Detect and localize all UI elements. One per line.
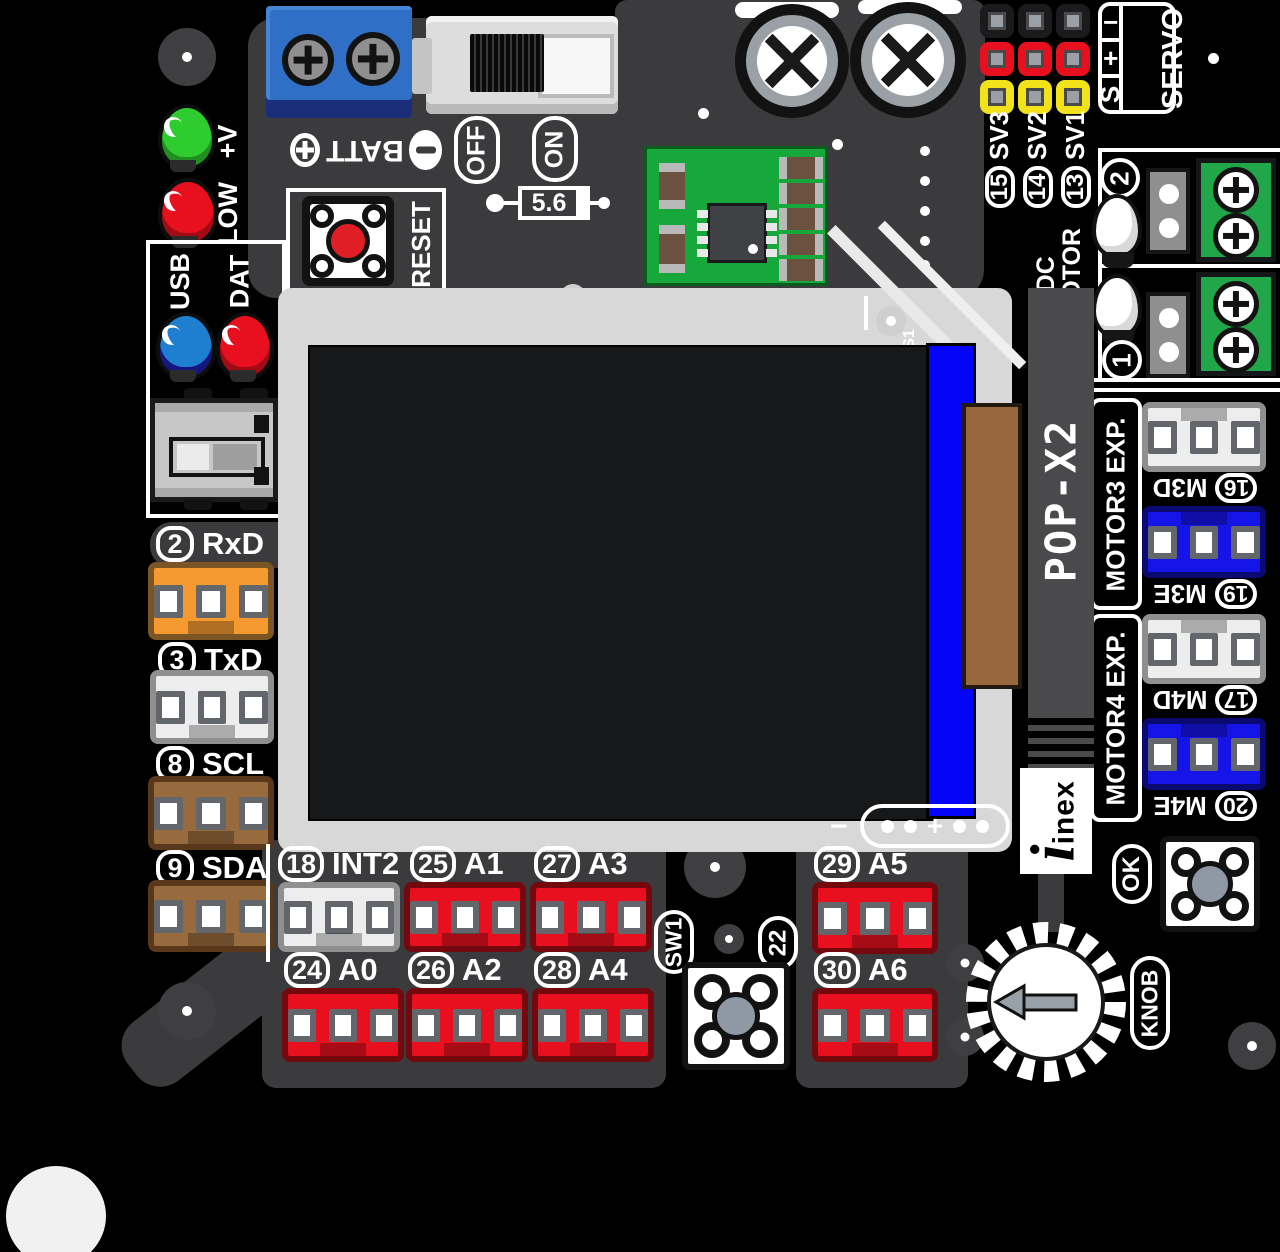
header-rxd-connector[interactable] bbox=[148, 562, 274, 640]
sw1-cap[interactable] bbox=[712, 992, 760, 1040]
motor2-terminal[interactable] bbox=[1196, 158, 1276, 262]
reset-corner-pin bbox=[310, 254, 334, 278]
m3d-label: 16 M3D bbox=[1146, 472, 1264, 504]
terminal-screw-icon[interactable] bbox=[282, 34, 334, 86]
dat-label: DAT bbox=[222, 250, 258, 312]
via-hole bbox=[158, 28, 216, 86]
servo-ch13-label: 13 SV1 bbox=[1060, 111, 1091, 208]
plusv-label: +V bbox=[210, 110, 246, 172]
lcd-flex-cable bbox=[962, 403, 1022, 689]
solder-dot bbox=[698, 108, 709, 119]
terminal-screw-icon bbox=[1213, 167, 1259, 213]
solder-dot bbox=[832, 139, 843, 150]
servo-minus: − bbox=[1102, 6, 1119, 42]
switch-off-label: OFF bbox=[454, 116, 500, 184]
header-a1-connector[interactable] bbox=[404, 882, 526, 952]
inex-logo: iinex bbox=[1020, 768, 1092, 874]
reset-button[interactable] bbox=[302, 196, 394, 286]
header-a0-label: 24A0 bbox=[284, 952, 378, 988]
terminal-screw-icon bbox=[1213, 281, 1259, 327]
motor2-header bbox=[1146, 168, 1190, 254]
knob-pointer-icon bbox=[1022, 995, 1076, 1010]
via-hole bbox=[1228, 1022, 1276, 1070]
zener-band bbox=[580, 186, 590, 220]
m4d-label: 17 M4D bbox=[1146, 684, 1264, 716]
header-rxd-label: 2RxD bbox=[156, 526, 264, 562]
servo-ch15-label: 15 SV3 bbox=[984, 111, 1015, 208]
servo-ch14-label: 14 SV2 bbox=[1022, 111, 1053, 208]
batt-label: BATT bbox=[326, 133, 404, 167]
usb-slot bbox=[169, 437, 265, 477]
reset-corner-pin bbox=[362, 204, 386, 228]
ok-button[interactable] bbox=[1160, 836, 1260, 932]
dc-motor2-num: 2 bbox=[1100, 158, 1140, 198]
usb-label: USB bbox=[162, 250, 198, 312]
header-txd-connector[interactable] bbox=[150, 670, 274, 744]
smd-capacitor bbox=[659, 163, 685, 209]
terminal-screw-icon bbox=[1213, 213, 1259, 259]
batt-plus-icon bbox=[290, 133, 320, 167]
switch-on-label: ON bbox=[532, 116, 578, 182]
dc-motor1-num: 1 bbox=[1102, 340, 1142, 380]
servo-label-box: − + S SERVO bbox=[1098, 2, 1176, 114]
reset-cap[interactable] bbox=[326, 219, 370, 263]
solder-dot bbox=[920, 176, 930, 186]
motor1-header bbox=[1146, 292, 1190, 378]
motor1-terminal[interactable] bbox=[1196, 272, 1276, 376]
header-int2-label: 18INT2 bbox=[278, 846, 399, 882]
power-switch[interactable] bbox=[426, 16, 618, 114]
header-a6-connector[interactable] bbox=[812, 988, 938, 1062]
capacitor-icon bbox=[850, 2, 966, 118]
motor3-exp-box: MOTOR3 EXP. bbox=[1090, 398, 1142, 610]
via-hole bbox=[158, 982, 216, 1040]
capacitor-icon bbox=[735, 4, 849, 118]
knob-dial[interactable] bbox=[960, 916, 1132, 1088]
motor4-exp-box: MOTOR4 EXP. bbox=[1090, 614, 1142, 822]
m3e-connector[interactable] bbox=[1142, 506, 1266, 578]
reset-corner-pin bbox=[310, 204, 334, 228]
solder-dot bbox=[920, 146, 930, 156]
zener-value: 5.6 bbox=[532, 189, 567, 218]
header-a6-label: 30A6 bbox=[814, 952, 908, 988]
zener-pad bbox=[486, 194, 504, 212]
lcd-screen bbox=[308, 345, 934, 821]
soic-chip bbox=[707, 203, 767, 263]
backlight-pads: + bbox=[860, 804, 1010, 848]
mounting-hole bbox=[6, 1166, 106, 1252]
inex-i-glyph: i bbox=[1030, 844, 1080, 861]
switch-recess bbox=[538, 34, 614, 98]
battery-terminal-block bbox=[266, 6, 412, 118]
header-a3-connector[interactable] bbox=[530, 882, 652, 952]
sw1-button[interactable] bbox=[682, 962, 790, 1070]
knob-label: KNOB bbox=[1130, 956, 1170, 1050]
servo-plus: + bbox=[1102, 42, 1119, 78]
header-a1-label: 25A1 bbox=[410, 846, 504, 882]
switch-tab bbox=[412, 38, 432, 94]
terminal-screw-icon bbox=[1213, 327, 1259, 373]
smd-capacitor bbox=[659, 225, 685, 273]
header-a0-connector[interactable] bbox=[282, 988, 404, 1062]
pad-plus-label: + bbox=[927, 810, 943, 842]
header-a4-label: 28A4 bbox=[534, 952, 628, 988]
batt-minus-icon bbox=[409, 130, 442, 170]
m4e-label: 20 M4E bbox=[1146, 790, 1264, 822]
m4d-connector[interactable] bbox=[1142, 614, 1266, 684]
reset-label: RESET bbox=[398, 192, 444, 296]
switch-grip[interactable] bbox=[470, 34, 544, 92]
servo-pin-grid[interactable] bbox=[980, 4, 1094, 114]
via-hole bbox=[714, 924, 744, 954]
m3e-label: 19 M3E bbox=[1146, 578, 1264, 610]
popx2-board-illustration: BATT OFF ON 5.6 RESET +V L bbox=[0, 0, 1280, 1252]
header-a5-label: 29A5 bbox=[814, 846, 908, 882]
servo-signal: S bbox=[1102, 78, 1119, 110]
low-label: LOW bbox=[210, 176, 246, 250]
zener-pad bbox=[598, 197, 610, 209]
header-int2-connector[interactable] bbox=[278, 882, 400, 952]
solder-pads bbox=[779, 157, 823, 281]
header-a5-connector[interactable] bbox=[812, 882, 938, 954]
zener-diode: 5.6 bbox=[518, 186, 580, 220]
motor1-led bbox=[1092, 274, 1142, 338]
popx2-model: POP-X2 bbox=[1028, 360, 1094, 640]
ok-label: OK bbox=[1112, 844, 1152, 904]
usb-connector[interactable] bbox=[150, 398, 278, 502]
rtc-module bbox=[644, 146, 828, 286]
solder-dot bbox=[920, 236, 930, 246]
m4e-connector[interactable] bbox=[1142, 718, 1266, 790]
header-a3-label: 27A3 bbox=[534, 846, 628, 882]
solder-dot bbox=[920, 206, 930, 216]
ok-cap[interactable] bbox=[1187, 861, 1233, 907]
header-a2-connector[interactable] bbox=[406, 988, 528, 1062]
reset-corner-pin bbox=[362, 254, 386, 278]
header-sda-connector[interactable] bbox=[148, 880, 274, 952]
header-scl-connector[interactable] bbox=[148, 776, 274, 850]
terminal-screw-icon[interactable] bbox=[346, 32, 400, 86]
batt-silkscreen: BATT bbox=[290, 126, 442, 174]
header-a4-connector[interactable] bbox=[532, 988, 654, 1062]
servo-title: SERVO bbox=[1157, 7, 1190, 108]
motor2-led bbox=[1092, 194, 1142, 258]
m3d-connector[interactable] bbox=[1142, 402, 1266, 472]
barcode-stripes bbox=[1028, 718, 1094, 768]
header-a2-label: 26A2 bbox=[408, 952, 502, 988]
pad-minus-label: − bbox=[830, 810, 848, 844]
